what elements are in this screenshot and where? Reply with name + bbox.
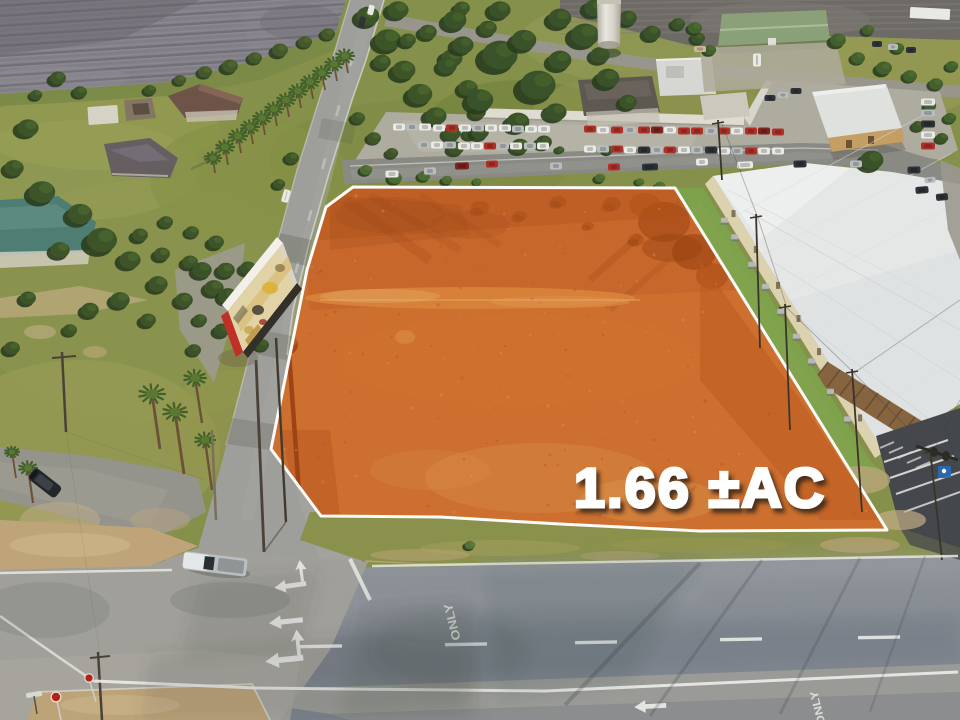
svg-text:1.66 ±AC: 1.66 ±AC — [574, 456, 826, 519]
